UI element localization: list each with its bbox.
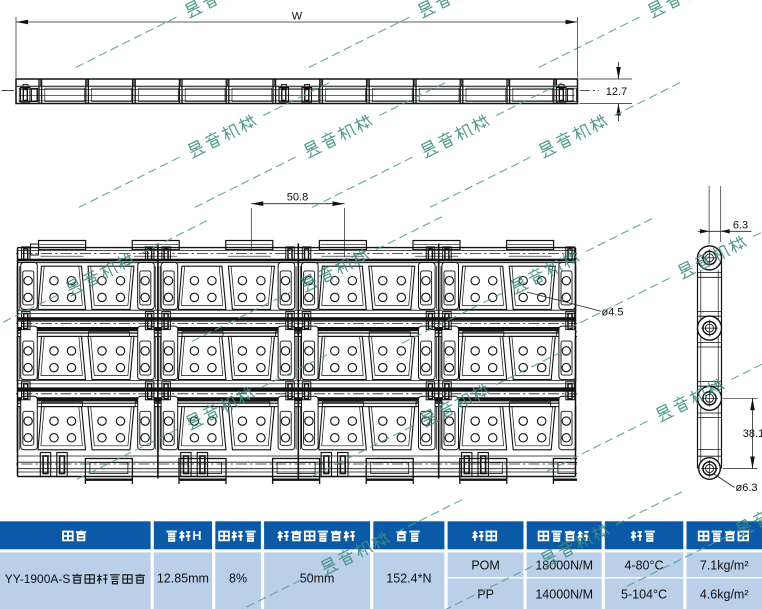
svg-text:12.7: 12.7 (606, 86, 627, 98)
svg-text:18000N/M: 18000N/M (535, 559, 593, 573)
svg-text:5-104°C: 5-104°C (621, 587, 667, 601)
svg-text:ø4.5: ø4.5 (602, 306, 624, 318)
svg-text:4-80°C: 4-80°C (624, 559, 663, 573)
svg-text:ø6.3: ø6.3 (736, 482, 758, 494)
svg-text:6.3: 6.3 (733, 220, 748, 232)
svg-text:14000N/M: 14000N/M (535, 587, 593, 601)
svg-text:YY-1900A-S: YY-1900A-S (5, 572, 71, 586)
svg-text:8%: 8% (229, 572, 247, 586)
svg-text:H: H (192, 529, 201, 543)
svg-text:50.8: 50.8 (287, 192, 308, 204)
svg-text:POM: POM (471, 559, 499, 573)
svg-text:4.6kg/m²: 4.6kg/m² (700, 587, 749, 601)
svg-text:12.85mm: 12.85mm (157, 572, 209, 586)
svg-text:7.1kg/m²: 7.1kg/m² (700, 559, 749, 573)
svg-text:38.1: 38.1 (743, 428, 762, 440)
svg-text:W: W (292, 10, 303, 22)
svg-text:152.4*N: 152.4*N (386, 572, 431, 586)
